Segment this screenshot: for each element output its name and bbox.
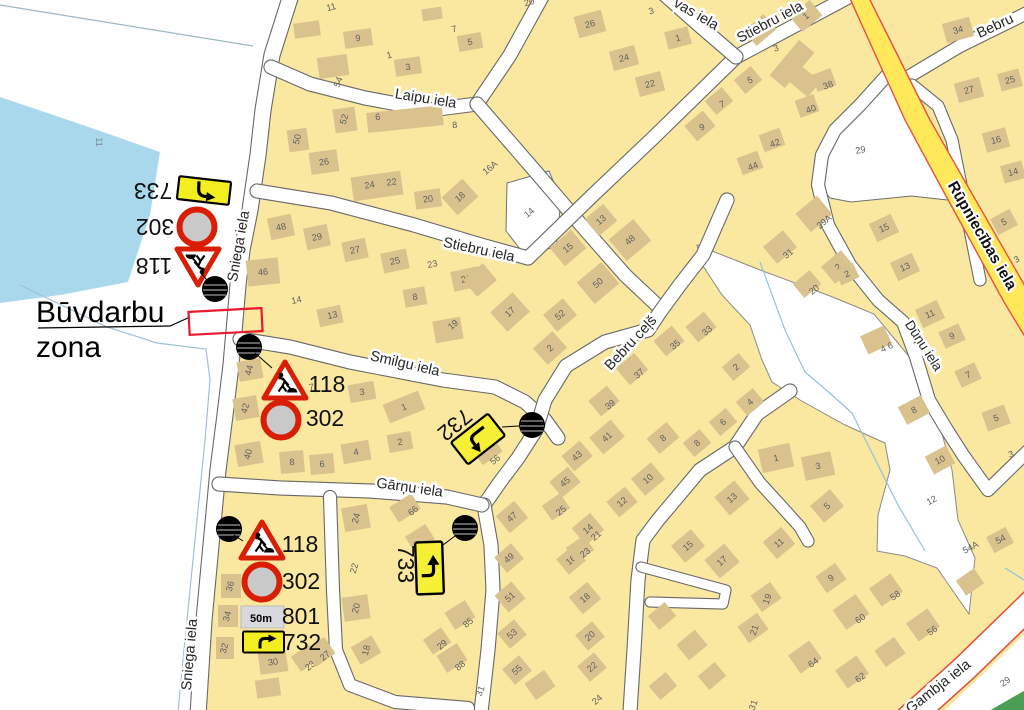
svg-text:26: 26 [318, 156, 330, 167]
svg-text:6: 6 [375, 112, 381, 122]
svg-text:46: 46 [257, 266, 268, 277]
svg-text:20: 20 [422, 193, 434, 204]
svg-text:733: 733 [393, 545, 419, 583]
svg-text:302: 302 [306, 405, 344, 431]
svg-text:8: 8 [452, 120, 458, 130]
svg-text:22: 22 [386, 176, 398, 187]
svg-text:29: 29 [855, 144, 867, 156]
svg-text:zona: zona [36, 331, 101, 364]
svg-text:118: 118 [282, 531, 319, 557]
svg-text:302: 302 [136, 214, 174, 240]
svg-text:732: 732 [283, 629, 321, 655]
svg-text:6: 6 [319, 459, 325, 469]
svg-text:23: 23 [426, 258, 438, 270]
svg-text:8: 8 [289, 457, 295, 467]
svg-text:801: 801 [282, 603, 320, 629]
svg-text:302: 302 [282, 568, 320, 594]
svg-text:11: 11 [94, 137, 104, 146]
svg-text:733: 733 [134, 178, 172, 204]
svg-text:29: 29 [311, 231, 323, 243]
svg-text:27: 27 [349, 244, 361, 256]
svg-text:50m: 50m [250, 613, 272, 625]
svg-text:14: 14 [290, 294, 302, 306]
svg-text:118: 118 [136, 253, 173, 279]
svg-text:118: 118 [309, 371, 346, 397]
svg-text:13: 13 [326, 309, 338, 321]
svg-text:Būvdarbu: Būvdarbu [36, 296, 164, 329]
svg-text:24: 24 [364, 179, 376, 190]
svg-text:30: 30 [267, 656, 279, 667]
svg-text:48: 48 [275, 221, 287, 233]
svg-text:25: 25 [389, 255, 401, 267]
